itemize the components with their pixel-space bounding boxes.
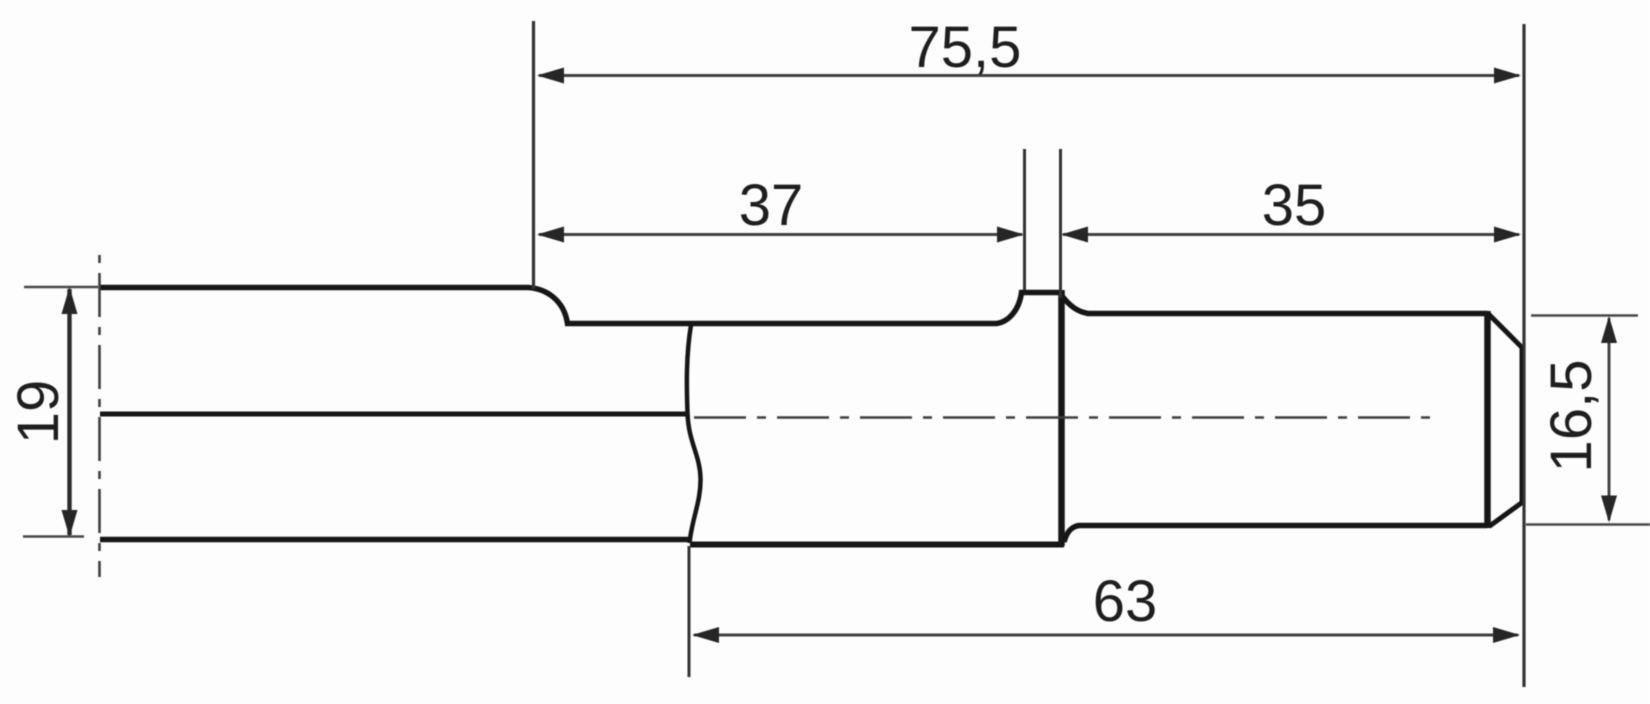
svg-text:63: 63 xyxy=(1093,569,1158,634)
svg-text:35: 35 xyxy=(1262,173,1327,238)
svg-text:19: 19 xyxy=(6,380,71,445)
svg-text:75,5: 75,5 xyxy=(909,15,1022,80)
svg-text:16,5: 16,5 xyxy=(1539,360,1604,473)
svg-text:37: 37 xyxy=(739,173,804,238)
